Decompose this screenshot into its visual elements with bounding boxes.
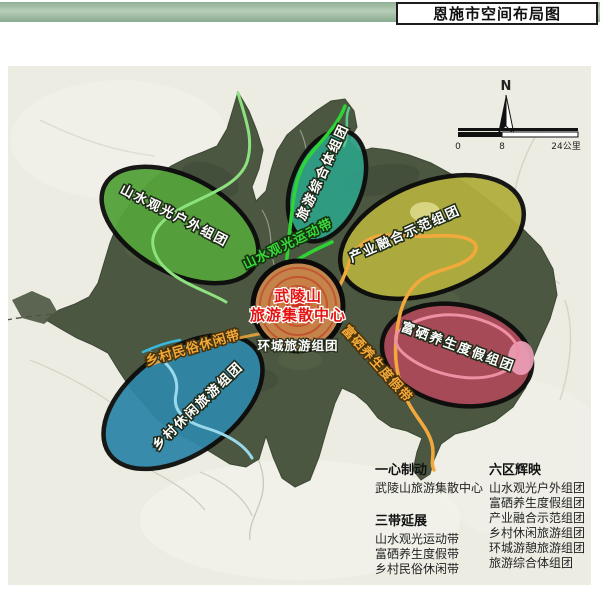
- page: 恩施市空间布局图: [0, 0, 600, 592]
- legend-item: 旅游综合体组团: [489, 554, 573, 571]
- legend-item: 武陵山旅游集散中心: [375, 479, 483, 496]
- scale-tick-8: 8: [499, 142, 505, 152]
- hub-label-line1: 武陵山: [274, 287, 322, 305]
- hub-sub-label: 环城旅游组团: [257, 338, 338, 353]
- legend-title-three-belts: 三带延展: [375, 510, 427, 529]
- central-hub: 武陵山 旅游集散中心 环城旅游组团: [250, 261, 346, 353]
- scale-tick-24: 24公里: [551, 141, 580, 152]
- hub-label-line2: 旅游集散中心: [250, 306, 346, 324]
- scale-tick-0: 0: [455, 142, 461, 152]
- compass-north-label: N: [501, 79, 512, 94]
- legend-title-one-center: 一心制动: [375, 459, 427, 478]
- legend-title-six-zones: 六区辉映: [489, 459, 541, 478]
- legend-item: 乡村民俗休闲带: [375, 560, 459, 577]
